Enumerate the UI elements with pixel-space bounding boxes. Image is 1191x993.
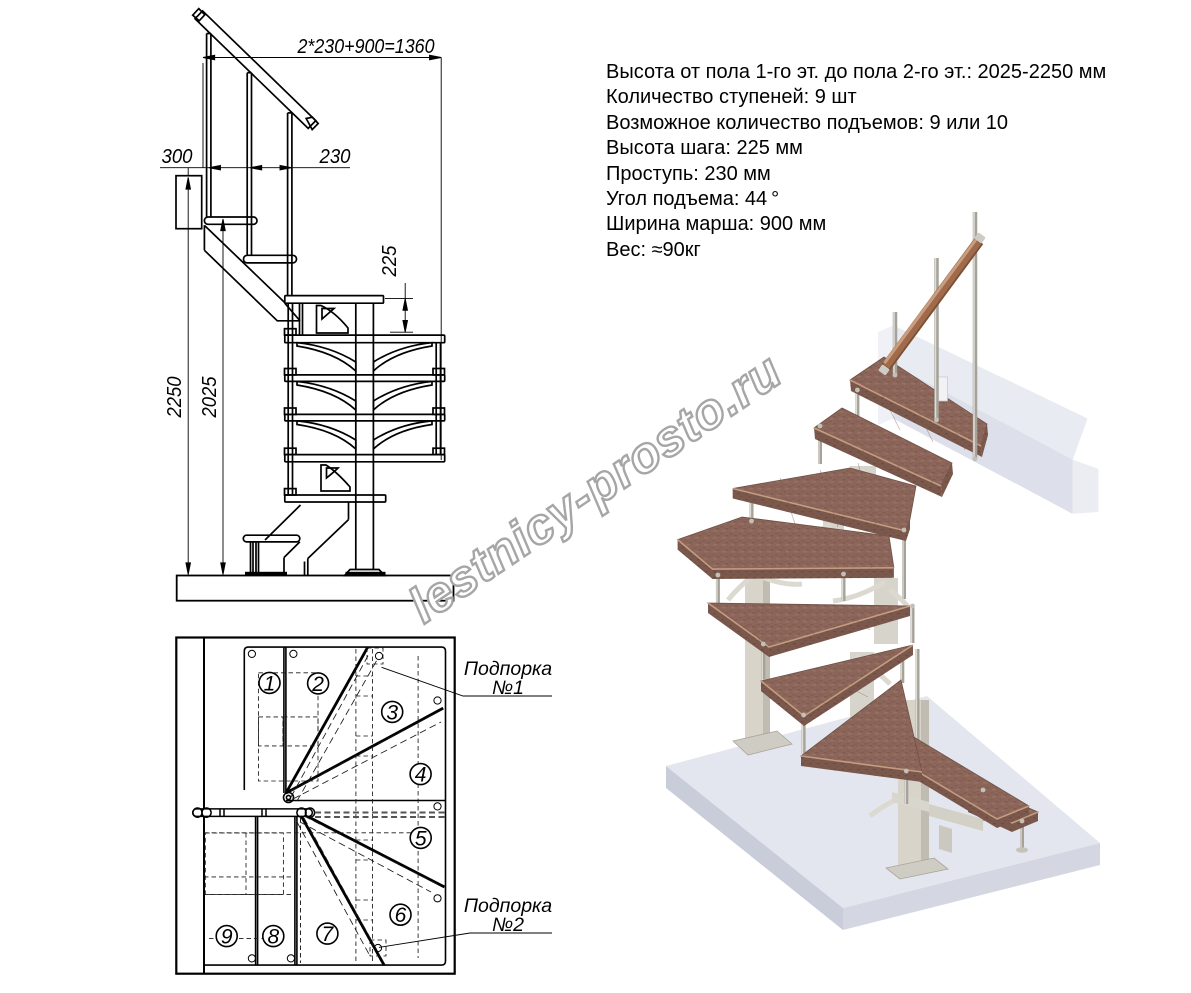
svg-text:2*230+900=1360: 2*230+900=1360 [297,35,435,58]
svg-text:8: 8 [267,926,279,949]
svg-text:7: 7 [322,923,335,946]
svg-text:2: 2 [311,673,324,696]
svg-text:300: 300 [162,145,194,168]
svg-text:225: 225 [378,245,401,277]
svg-text:5: 5 [415,827,427,850]
svg-text:3: 3 [386,701,398,724]
svg-text:2250: 2250 [163,376,186,418]
svg-text:2025: 2025 [198,376,221,418]
svg-text:6: 6 [395,904,407,927]
svg-text:1: 1 [264,672,276,695]
svg-text:4: 4 [415,764,427,787]
svg-text:lestnicy-prosto.ru: lestnicy-prosto.ru [398,342,791,633]
svg-text:9: 9 [221,926,233,949]
svg-text:230: 230 [319,145,351,168]
